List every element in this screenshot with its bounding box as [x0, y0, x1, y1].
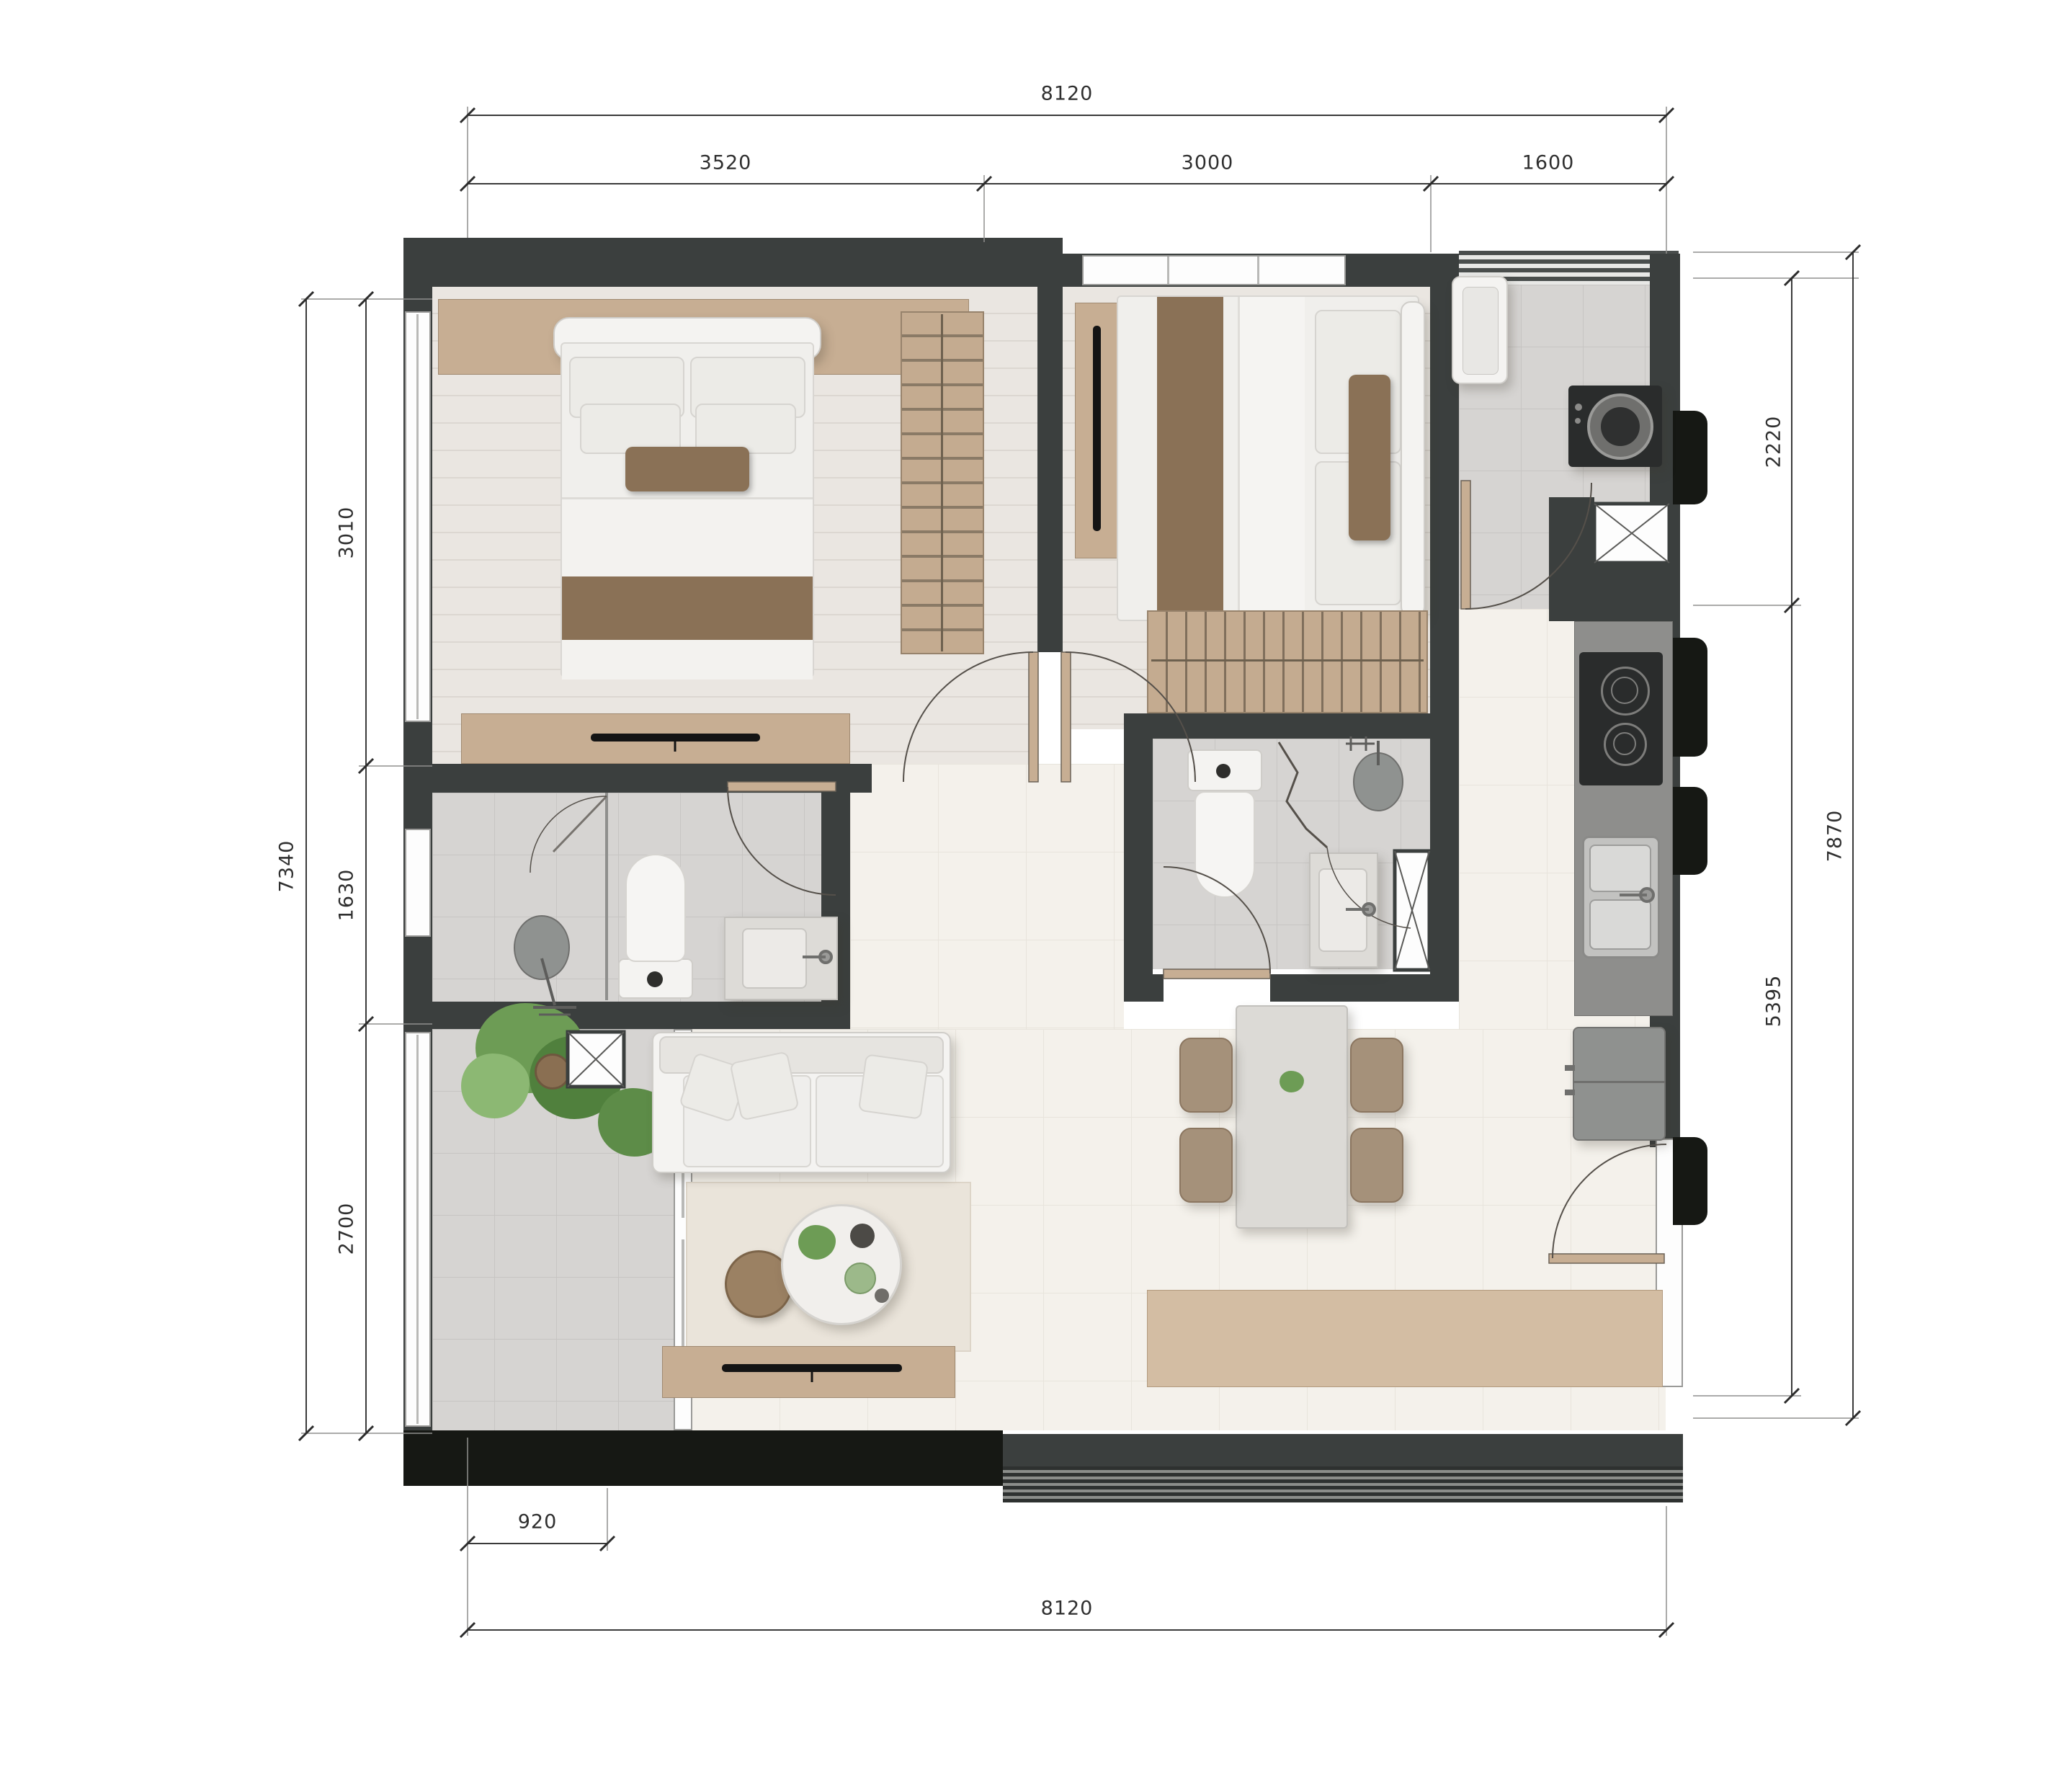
bedroom2-door-swing	[1066, 652, 1195, 782]
dim-left-total: 7340	[276, 840, 298, 893]
shower-head-icon	[514, 916, 569, 979]
bath2-door-leaf	[1164, 969, 1270, 979]
laundry-door-swing	[1465, 483, 1591, 609]
dim-top-seg2: 3000	[1182, 152, 1234, 174]
dim-left-seg2: 1630	[336, 869, 358, 922]
faucets	[803, 888, 1653, 963]
dim-bottom-offset: 920	[518, 1511, 558, 1533]
laundry-door-leaf	[1461, 481, 1470, 609]
bath1-door-swing	[728, 787, 836, 895]
dim-top-total: 8120	[1041, 83, 1094, 105]
bath2-door-swing	[1164, 867, 1270, 974]
bedroom2-door-leaf	[1061, 652, 1071, 782]
bedroom1-door-leaf	[1029, 652, 1038, 782]
dim-bottom-total: 8120	[1041, 1598, 1094, 1620]
bedroom1-door-swing	[903, 652, 1033, 782]
bath1-shower	[514, 793, 607, 1015]
floor-plan-canvas: 8120 3520 3000 1600 7340 3010 1630 2700 …	[0, 0, 2072, 1777]
dim-top-seg3: 1600	[1522, 152, 1575, 174]
dim-right-total: 7870	[1824, 810, 1847, 863]
dimension-ticks	[299, 108, 1860, 1637]
bath1-door-leaf	[728, 782, 836, 791]
dim-right-seg2: 5395	[1763, 975, 1785, 1028]
dim-left-seg3: 2700	[336, 1203, 358, 1255]
dim-left-seg1: 3010	[336, 507, 358, 559]
dining-balcony-door-leaf	[1549, 1254, 1664, 1263]
dim-top-seg1: 3520	[700, 152, 752, 174]
dim-right-seg1: 2220	[1763, 416, 1785, 468]
dimension-lines	[306, 115, 1853, 1630]
extension-lines	[301, 107, 1859, 1636]
tv-stands	[675, 741, 812, 1382]
dining-balcony-door-swing	[1553, 1144, 1666, 1258]
annotation-overlay	[0, 0, 2072, 1777]
technical-shafts	[568, 504, 1669, 1087]
bath2-shower	[1279, 736, 1411, 928]
doors	[728, 481, 1666, 1263]
